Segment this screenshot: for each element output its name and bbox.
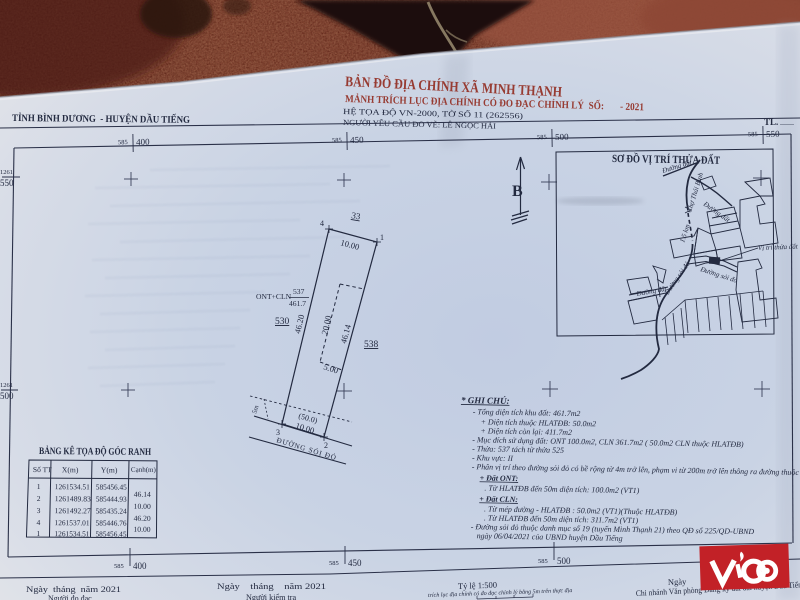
svg-text:1261: 1261 xyxy=(0,382,13,389)
svg-text:585: 585 xyxy=(538,558,548,565)
svg-text:538: 538 xyxy=(364,340,379,350)
svg-text:585: 585 xyxy=(118,139,128,146)
svg-text:BẢNG KÊ TỌA ĐỘ GÓC RANH: BẢNG KÊ TỌA ĐỘ GÓC RANH xyxy=(39,444,151,458)
svg-text:1261492.27: 1261492.27 xyxy=(55,506,91,515)
svg-text:400: 400 xyxy=(133,561,147,571)
svg-text:B: B xyxy=(512,183,523,200)
svg-text:537: 537 xyxy=(293,287,305,296)
svg-text:+ Đất CLN:: + Đất CLN: xyxy=(479,494,518,504)
svg-text:585456.45: 585456.45 xyxy=(95,529,126,538)
svg-text:Y(m): Y(m) xyxy=(101,465,118,474)
svg-text:1: 1 xyxy=(37,482,41,491)
svg-text:Cạnh(m): Cạnh(m) xyxy=(131,466,157,474)
svg-text:585456.45: 585456.45 xyxy=(96,482,127,491)
svg-text:3: 3 xyxy=(37,506,41,515)
svg-text:585: 585 xyxy=(537,134,547,141)
svg-text:550: 550 xyxy=(766,129,780,139)
svg-text:ONT+CLN: ONT+CLN xyxy=(256,292,292,301)
svg-text:1261537.01: 1261537.01 xyxy=(55,518,90,527)
svg-text:* GHI CHÚ:: * GHI CHÚ: xyxy=(461,395,510,406)
svg-text:Tỷ lệ 1:500: Tỷ lệ 1:500 xyxy=(458,580,498,591)
svg-text:Ngày tháng năm 2021: Ngày tháng năm 2021 xyxy=(26,585,121,594)
svg-text:SƠ ĐỒ VỊ TRÍ THỬA ĐẤT: SƠ ĐỒ VỊ TRÍ THỬA ĐẤT xyxy=(612,152,721,167)
svg-text:500: 500 xyxy=(555,132,569,142)
svg-text:585446.76: 585446.76 xyxy=(96,518,127,527)
svg-text:+ Đất ONT:: + Đất ONT: xyxy=(480,473,519,483)
svg-text:585: 585 xyxy=(329,560,339,567)
svg-text:400: 400 xyxy=(136,137,150,147)
svg-text:46.20: 46.20 xyxy=(134,514,151,523)
svg-text:Số TT: Số TT xyxy=(33,465,52,474)
svg-text:Vị trí thửa đất: Vị trí thửa đất xyxy=(758,243,799,252)
svg-text:10.00: 10.00 xyxy=(134,502,151,511)
svg-text:46.14: 46.14 xyxy=(134,490,151,499)
svg-text:- Tổng diện tích khu đất: 461.: - Tổng diện tích khu đất: 461.7m2 xyxy=(473,407,581,418)
svg-text:585: 585 xyxy=(114,563,124,570)
svg-text:.......: ....... xyxy=(780,118,794,127)
svg-text:Người kiểm tra: Người kiểm tra xyxy=(246,593,297,600)
svg-text:585435.24: 585435.24 xyxy=(96,506,127,515)
svg-text:Ngày tháng năm 2021: Ngày tháng năm 2021 xyxy=(217,582,326,591)
svg-text:1: 1 xyxy=(36,529,40,538)
svg-text:10.00: 10.00 xyxy=(133,525,150,534)
svg-text:1: 1 xyxy=(380,233,384,242)
svg-text:X(m): X(m) xyxy=(62,465,79,474)
svg-text:Ngày: Ngày xyxy=(668,576,687,587)
svg-text:1261: 1261 xyxy=(0,169,13,176)
svg-text:585444.93: 585444.93 xyxy=(96,494,127,503)
svg-text:1261534.51: 1261534.51 xyxy=(54,529,89,538)
svg-text:4: 4 xyxy=(37,518,41,527)
svg-text:450: 450 xyxy=(350,135,364,145)
svg-text:2: 2 xyxy=(324,441,328,450)
svg-text:550: 550 xyxy=(0,178,14,188)
svg-text:Người đo đạc: Người đo đạc xyxy=(48,594,92,600)
svg-text:461.7: 461.7 xyxy=(289,299,306,308)
svg-text:530: 530 xyxy=(275,317,290,327)
svg-text:1261489.83: 1261489.83 xyxy=(55,494,91,503)
svg-text:2: 2 xyxy=(37,494,41,503)
svg-text:585: 585 xyxy=(748,131,758,138)
svg-text:500: 500 xyxy=(557,556,571,566)
svg-text:1261534.51: 1261534.51 xyxy=(55,482,90,491)
svg-text:4: 4 xyxy=(320,219,324,228)
svg-text:500: 500 xyxy=(0,391,14,401)
svg-text:585: 585 xyxy=(332,137,342,144)
svg-text:450: 450 xyxy=(348,558,362,568)
